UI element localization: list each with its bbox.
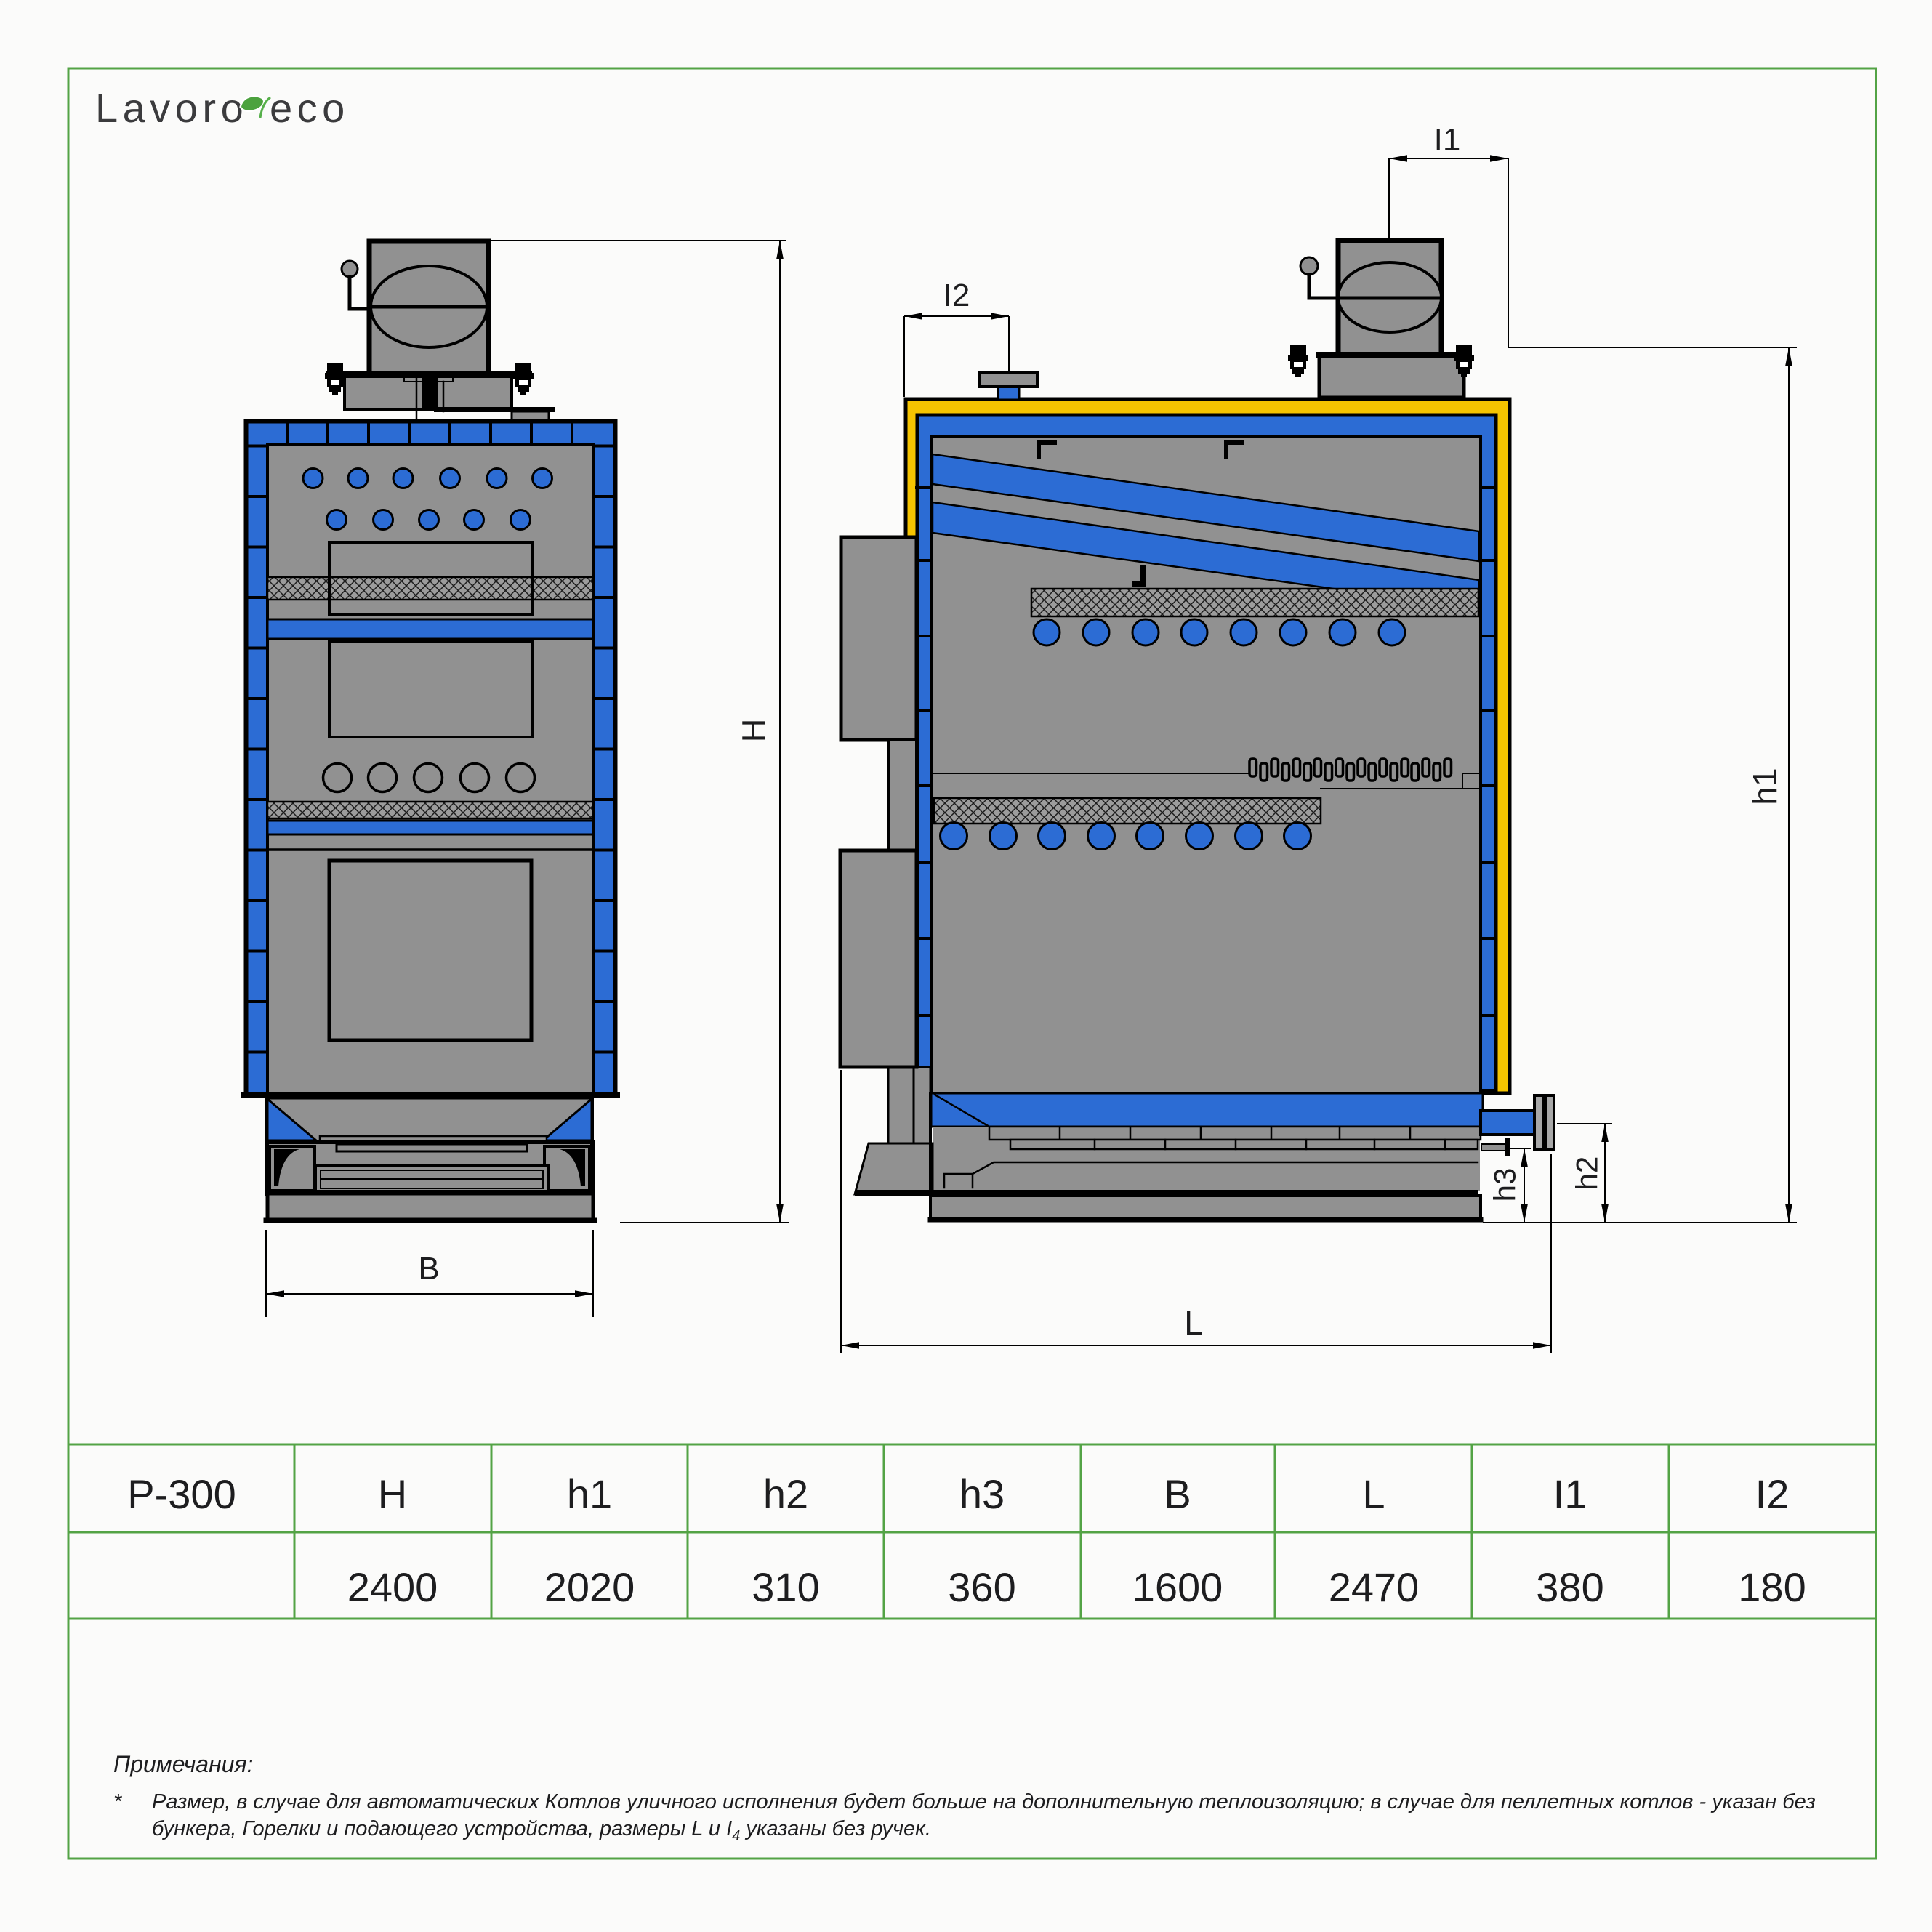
svg-text:Lavoro: Lavoro (95, 85, 248, 131)
svg-text:I2: I2 (943, 278, 970, 313)
svg-text:B: B (418, 1251, 439, 1287)
svg-text:H: H (736, 719, 773, 743)
svg-text:2020: 2020 (544, 1564, 635, 1610)
svg-text:h3: h3 (959, 1471, 1005, 1517)
svg-text:L: L (1362, 1471, 1385, 1517)
svg-text:h1: h1 (567, 1471, 612, 1517)
svg-text:h2: h2 (1570, 1156, 1604, 1191)
svg-text:бункера, Горелки и подающего у: бункера, Горелки и подающего устройства,… (152, 1817, 931, 1844)
svg-text:Примечания:: Примечания: (113, 1751, 253, 1777)
svg-text:I1: I1 (1553, 1471, 1587, 1517)
svg-text:*: * (113, 1790, 123, 1814)
svg-text:Размер, в случае для автоматич: Размер, в случае для автоматических Котл… (152, 1790, 1816, 1814)
svg-text:310: 310 (752, 1564, 819, 1610)
svg-text:360: 360 (948, 1564, 1015, 1610)
svg-text:I1: I1 (1434, 122, 1461, 158)
svg-text:2470: 2470 (1329, 1564, 1420, 1610)
svg-text:1600: 1600 (1132, 1564, 1223, 1610)
svg-text:h1: h1 (1746, 768, 1784, 805)
svg-text:180: 180 (1738, 1564, 1806, 1610)
svg-text:380: 380 (1536, 1564, 1603, 1610)
svg-text:L: L (1184, 1304, 1203, 1342)
svg-text:P-300: P-300 (127, 1471, 236, 1517)
svg-text:h3: h3 (1488, 1168, 1522, 1202)
svg-text:I2: I2 (1755, 1471, 1790, 1517)
svg-text:h2: h2 (763, 1471, 808, 1517)
svg-text:B: B (1164, 1471, 1191, 1517)
svg-text:eco: eco (270, 85, 350, 131)
svg-text:H: H (378, 1471, 407, 1517)
svg-text:2400: 2400 (347, 1564, 438, 1610)
